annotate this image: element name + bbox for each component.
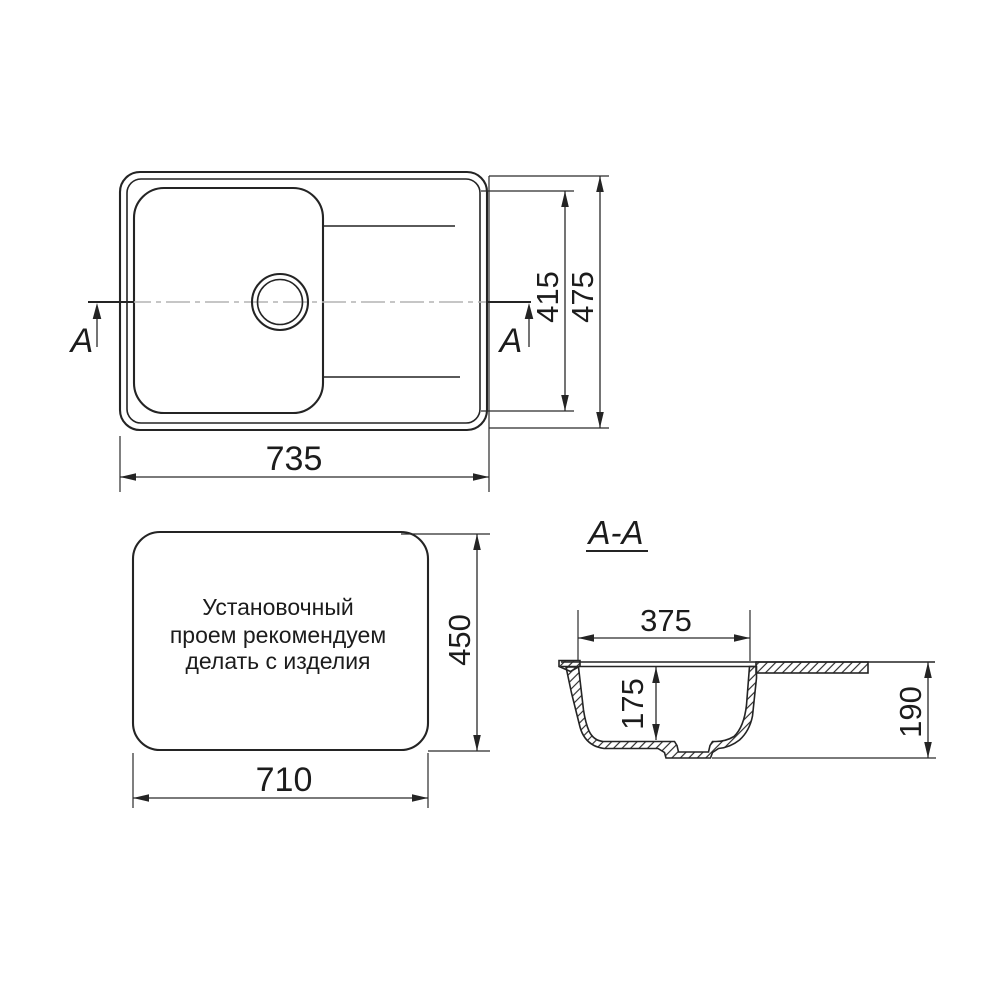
note-line-2: проем рекомендуем: [170, 622, 386, 648]
note-line-1: Установочный: [202, 594, 353, 620]
dim-label-450: 450: [442, 614, 477, 666]
dim-label-415: 415: [530, 271, 565, 323]
dim-label-190: 190: [893, 686, 928, 738]
section-label-left: A: [69, 322, 94, 360]
deck-slab-section: [756, 662, 868, 673]
dim-label-375: 375: [640, 603, 692, 638]
dim-label-710: 710: [256, 761, 313, 799]
dim-label-175: 175: [615, 678, 650, 730]
note-line-3: делать с изделия: [185, 648, 370, 674]
section-label-right: A: [498, 322, 523, 360]
section-title: A-A: [586, 514, 643, 551]
drawing-canvas: A A 415 475: [0, 0, 1000, 1000]
sink-technical-drawing: A A 415 475: [0, 0, 1000, 1000]
dim-label-735: 735: [266, 440, 323, 478]
page-background: [0, 0, 1000, 1000]
dim-label-475: 475: [565, 271, 600, 323]
